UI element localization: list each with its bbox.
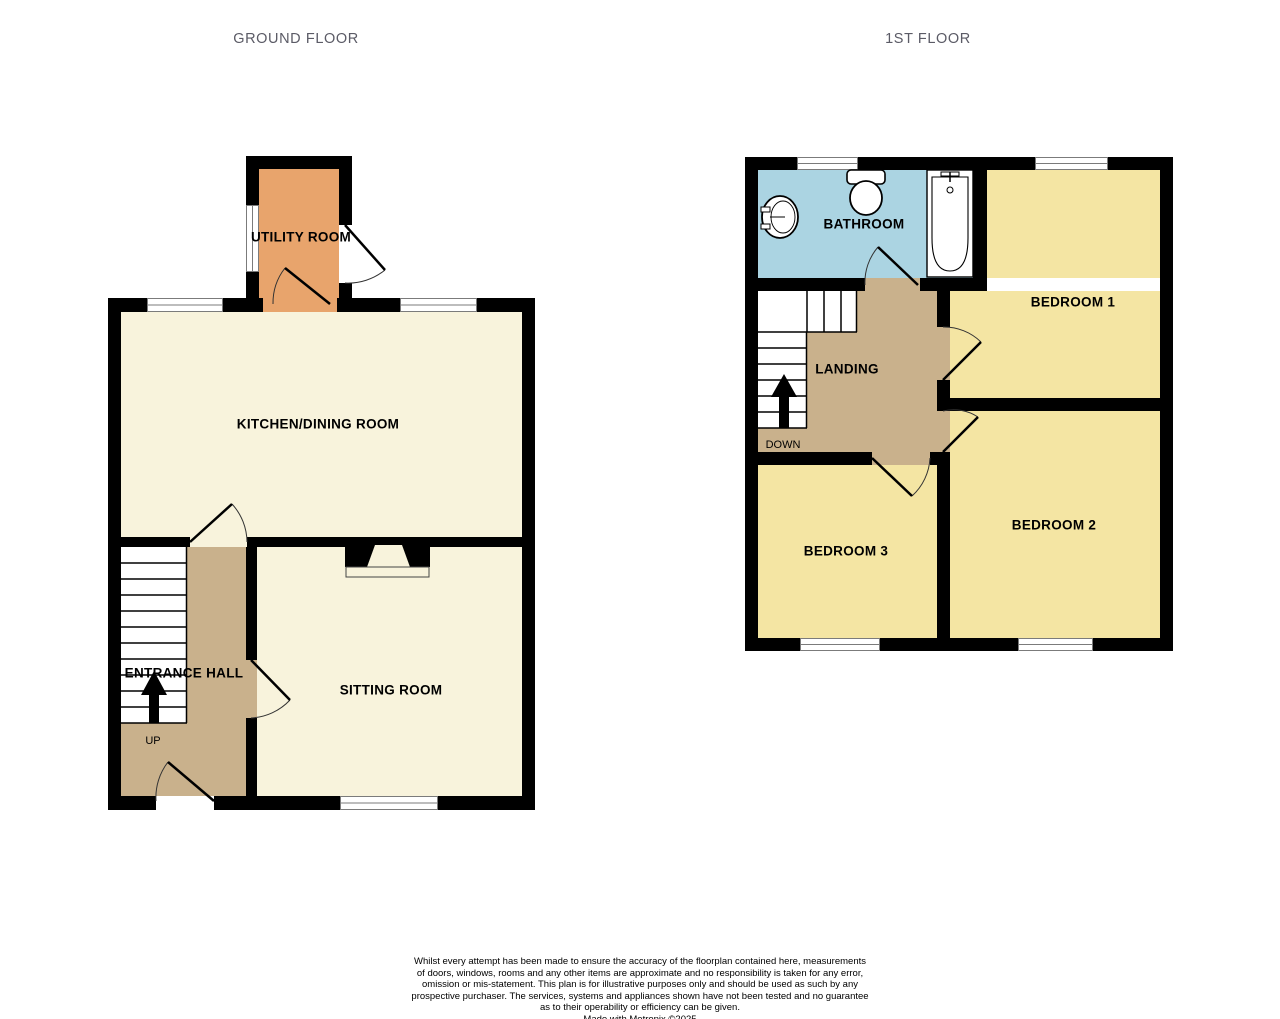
bedroom1-floor-upper bbox=[987, 170, 1160, 278]
down-label: DOWN bbox=[766, 439, 801, 451]
bathroom-window bbox=[797, 157, 858, 170]
bedroom2-window bbox=[1018, 638, 1093, 651]
first-floor-stair-winders bbox=[758, 291, 857, 332]
gf-east-wall bbox=[522, 298, 535, 810]
bathroom-doorway bbox=[865, 278, 920, 291]
disclaimer-line: of doors, windows, rooms and any other i… bbox=[411, 968, 868, 980]
kitchen-window-right bbox=[400, 298, 477, 312]
bedroom3-label: BEDROOM 3 bbox=[804, 544, 888, 559]
disclaimer-line: prospective purchaser. The services, sys… bbox=[411, 991, 868, 1003]
hall-sitting-doorway bbox=[246, 660, 257, 718]
made-with-credit: Made with Metropix ©2025 bbox=[411, 1014, 868, 1019]
floorplan-canvas: GROUND FLOOR 1ST FLOOR bbox=[0, 0, 1280, 1019]
bedroom3-bedroom2-wall bbox=[937, 452, 950, 638]
first-floor-stair-flight bbox=[758, 332, 807, 428]
kitchen-dining-room-label: KITCHEN/DINING ROOM bbox=[237, 417, 399, 432]
bedroom1-window bbox=[1035, 157, 1108, 170]
disclaimer-line: omission or mis-statement. This plan is … bbox=[411, 979, 868, 991]
entrance-hall-label: ENTRANCE HALL bbox=[125, 666, 244, 681]
utility-room-label: UTILITY ROOM bbox=[251, 230, 351, 245]
sitting-room-window bbox=[340, 796, 438, 810]
bedroom1-bedroom2-wall bbox=[937, 398, 1160, 411]
utility-kitchen-doorway bbox=[263, 298, 337, 312]
bathroom-east-wall bbox=[973, 170, 987, 278]
kitchen-window-left bbox=[147, 298, 223, 312]
up-label: UP bbox=[145, 735, 160, 747]
ground-floor-staircase bbox=[121, 547, 187, 723]
bedroom1-doorway bbox=[937, 327, 950, 380]
kitchen-hall-doorway bbox=[190, 537, 247, 547]
bedroom1-label: BEDROOM 1 bbox=[1031, 295, 1115, 310]
gf-west-wall bbox=[108, 298, 121, 810]
bedroom2-doorway bbox=[937, 411, 950, 452]
bathroom-label: BATHROOM bbox=[824, 217, 905, 232]
ff-east-wall bbox=[1160, 157, 1173, 651]
disclaimer-line: Whilst every attempt has been made to en… bbox=[411, 956, 868, 968]
utility-north-wall bbox=[246, 156, 352, 169]
front-doorway bbox=[156, 796, 214, 810]
disclaimer: Whilst every attempt has been made to en… bbox=[411, 956, 868, 1019]
kitchen-partition-wall bbox=[121, 537, 522, 547]
bedroom3-doorway bbox=[872, 452, 930, 465]
disclaimer-line: as to their operability or efficiency ca… bbox=[411, 1002, 868, 1014]
ground-floor-title: GROUND FLOOR bbox=[233, 31, 359, 47]
bedroom3-window bbox=[800, 638, 880, 651]
landing-label: LANDING bbox=[815, 362, 879, 377]
bedroom2-label: BEDROOM 2 bbox=[1012, 518, 1096, 533]
sitting-room-floor bbox=[257, 547, 522, 796]
sitting-room-label: SITTING ROOM bbox=[340, 683, 443, 698]
ff-west-wall bbox=[745, 157, 758, 651]
first-floor-title: 1ST FLOOR bbox=[885, 31, 971, 47]
fireplace-chimney-breast bbox=[345, 545, 430, 567]
